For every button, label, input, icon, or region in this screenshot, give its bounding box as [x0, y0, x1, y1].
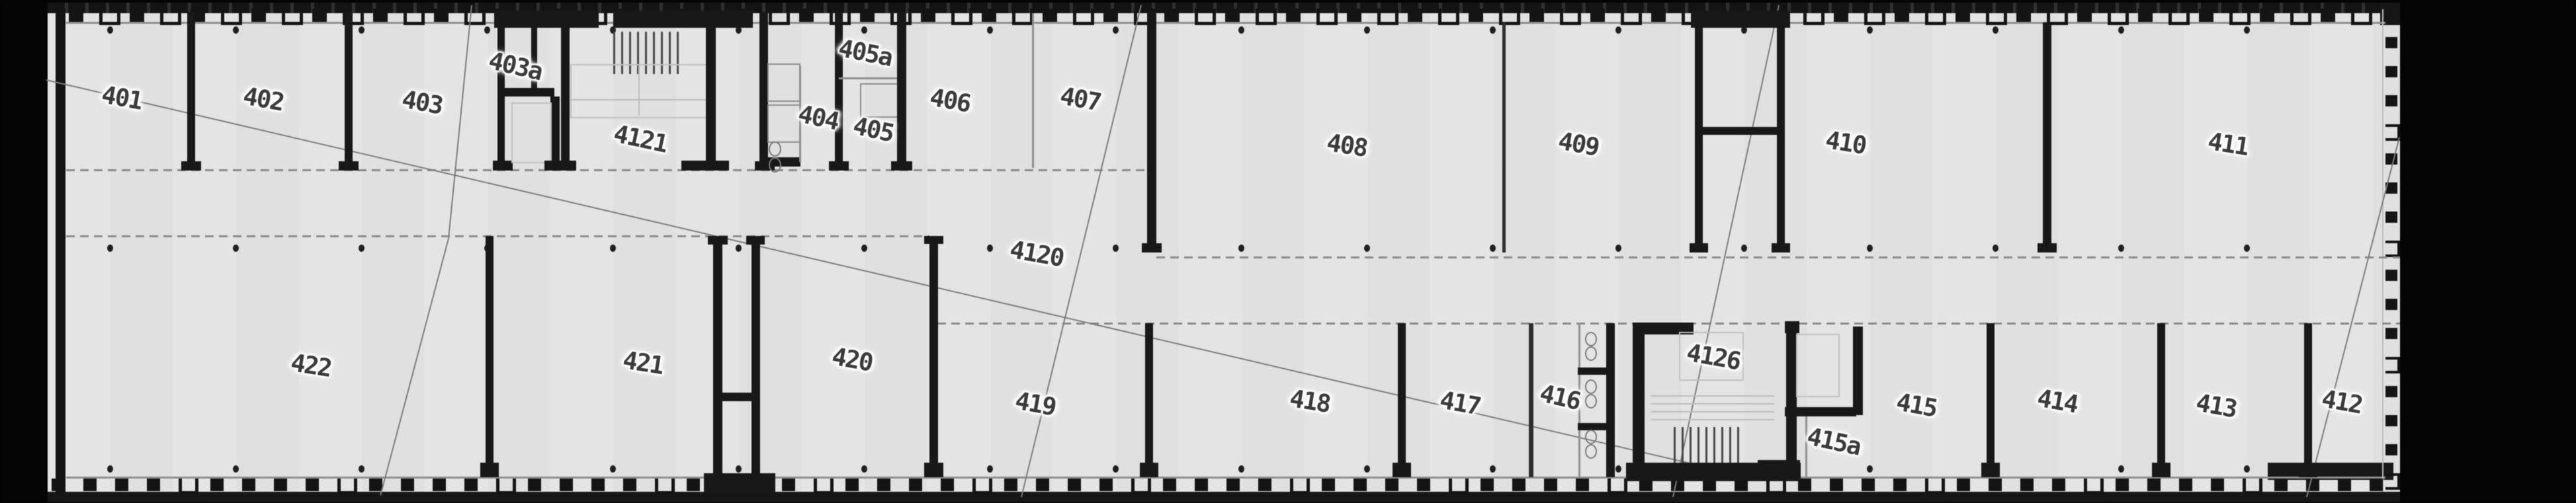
- column-dot: [107, 26, 113, 34]
- window-mullion: [312, 9, 327, 22]
- column-dot: [359, 26, 365, 34]
- window-mullion: [1862, 479, 1875, 491]
- column-dot: [1615, 465, 1621, 473]
- column-dot: [987, 26, 993, 34]
- window-mullion: [1989, 479, 2002, 491]
- wall-foot: [891, 161, 912, 171]
- stair-wall-left: [561, 26, 570, 170]
- elevator-wall-right: [751, 236, 760, 477]
- window-mullion: [1036, 479, 1049, 491]
- window-mullion: [2211, 479, 2224, 491]
- column-dot: [1867, 245, 1873, 252]
- wall-foot: [2152, 463, 2170, 477]
- room-label-408: 408: [1325, 128, 1369, 163]
- window-mullion: [69, 9, 83, 22]
- window-mullion: [2147, 479, 2161, 491]
- window-mullion: [1195, 479, 1208, 491]
- window-mullion: [799, 9, 814, 22]
- window-mullion: [2199, 9, 2213, 22]
- floor-plan-canvas: 401402403403a4121404405405a4064074084094…: [0, 0, 2576, 503]
- facade-dash-right: [2385, 241, 2400, 257]
- window-mullion-open: [1608, 479, 1627, 494]
- column-dot: [1113, 26, 1119, 34]
- stair-tread-4126: [1721, 427, 1723, 467]
- column-dot: [1490, 26, 1496, 34]
- window-mullion: [1955, 9, 1970, 22]
- core-header: [1785, 321, 1799, 333]
- column-dot: [1238, 245, 1244, 252]
- facade-dash-right: [2385, 386, 2397, 397]
- column-dot: [1741, 245, 1747, 252]
- window-mullion: [2116, 479, 2129, 491]
- wc-fixture: [1585, 332, 1597, 346]
- window-mullion: [1068, 479, 1081, 491]
- stair-tread-line: [1651, 419, 1774, 420]
- facade-dash-right: [2385, 444, 2397, 455]
- wall-422-421: [486, 236, 494, 477]
- window-mullion: [1830, 479, 1843, 491]
- column-dot: [987, 245, 993, 252]
- wc-fixture: [769, 141, 781, 157]
- window-mullion: [434, 9, 449, 22]
- window-mullion: [2179, 479, 2192, 491]
- column-dot: [2118, 245, 2124, 252]
- window-mullion: [591, 479, 605, 491]
- window-mullion-open: [2168, 9, 2190, 25]
- window-mullion: [1004, 479, 1017, 491]
- window-mullion: [528, 479, 541, 491]
- closet-outline: [511, 102, 552, 163]
- window-mullion: [1164, 9, 1179, 22]
- window-mullion-open: [769, 9, 790, 25]
- room-label-418: 418: [1288, 384, 1332, 418]
- window-mullion: [251, 9, 266, 22]
- column-dot: [233, 245, 239, 252]
- stair-divider-line: [638, 64, 640, 116]
- column-dot: [987, 465, 993, 473]
- window-mullion: [1258, 479, 1271, 491]
- window-mullion: [2020, 479, 2034, 491]
- stair-tread-4126: [1729, 427, 1731, 467]
- stair-tread-4126: [1737, 427, 1739, 467]
- facade-dash-right: [2385, 299, 2397, 310]
- window-mullion-open: [1449, 479, 1469, 494]
- core-wall-right: [1786, 321, 1797, 472]
- facade-dash-right: [2385, 415, 2397, 426]
- wall-foot: [1772, 243, 1790, 252]
- wc-fixture: [769, 157, 781, 173]
- wc-stall: [767, 63, 800, 102]
- window-mullion: [1322, 479, 1335, 491]
- core-wall-left: [1633, 327, 1645, 475]
- stair-tread-line: [1651, 411, 1774, 412]
- column-dot: [1364, 465, 1370, 473]
- window-mullion: [1385, 479, 1398, 491]
- wall-414-413: [2157, 323, 2165, 477]
- window-mullion: [1481, 479, 1494, 491]
- facade-line-right: [2382, 9, 2383, 492]
- core-base: [1758, 460, 1800, 472]
- elevator-wall-left: [713, 236, 722, 477]
- window-mullion: [464, 479, 478, 491]
- window-mullion: [433, 479, 446, 491]
- window-mullion-open: [1073, 9, 1094, 25]
- column-dot: [861, 245, 867, 252]
- wc-fixture: [1585, 379, 1597, 394]
- wall-413-412: [2304, 323, 2312, 477]
- window-mullion-open: [404, 9, 425, 25]
- window-mullion: [1895, 9, 1909, 22]
- window-mullion-open: [1131, 479, 1151, 494]
- wall-415-414: [1987, 323, 1995, 477]
- wall-foot: [2299, 463, 2317, 477]
- window-mullion-open: [282, 9, 303, 25]
- wall-419-418: [1145, 323, 1153, 477]
- window-mullion: [982, 9, 996, 22]
- column-dot: [1238, 465, 1244, 473]
- stair-tread-4126: [1690, 427, 1692, 467]
- window-mullion: [909, 479, 922, 491]
- column-dot: [2244, 26, 2250, 34]
- window-mullion: [1225, 9, 1240, 22]
- column-dot: [610, 245, 616, 252]
- column-dot: [1490, 245, 1496, 252]
- wc-fixture: [1585, 394, 1597, 408]
- window-mullion: [373, 9, 388, 22]
- column-dot: [233, 465, 239, 473]
- window-mullion-open: [1621, 9, 1642, 25]
- column-dot: [861, 26, 867, 34]
- stair-tread-line: [1651, 395, 1774, 397]
- window-mullion-open: [2290, 9, 2311, 25]
- wall-408-409: [1502, 22, 1506, 252]
- window-mullion-open: [464, 9, 486, 25]
- room-label-422: 422: [289, 348, 333, 383]
- window-mullion: [1576, 479, 1589, 491]
- window-mullion: [1286, 9, 1301, 22]
- wall-foot: [1142, 243, 1162, 252]
- window-mullion: [2260, 9, 2274, 22]
- window-mullion-open: [1195, 9, 1216, 25]
- wall-403a-room: [550, 97, 560, 170]
- window-mullion: [1529, 9, 1544, 22]
- stall-wall: [1578, 423, 1608, 430]
- core-header: [716, 11, 753, 28]
- wall-402-403: [345, 12, 353, 167]
- facade-dash-right: [2385, 66, 2397, 77]
- window-mullion-open: [2351, 9, 2372, 25]
- window-mullion: [941, 479, 954, 491]
- window-mullion: [210, 479, 224, 491]
- wall-nook-right: [1853, 327, 1863, 415]
- wc-stall: [767, 104, 800, 143]
- window-mullion: [1099, 479, 1113, 491]
- window-mullion: [1834, 9, 1848, 22]
- window-mullion-open: [337, 479, 357, 494]
- facade-dash-right: [2385, 270, 2397, 281]
- room-label-411: 411: [2206, 127, 2251, 161]
- shaft-wall-left: [1695, 26, 1703, 251]
- window-mullion-open: [1986, 9, 2007, 25]
- facade-dash-right: [2385, 212, 2397, 223]
- window-mullion: [845, 479, 859, 491]
- wall-foot: [493, 161, 513, 171]
- column-dot: [107, 245, 113, 252]
- stair-landing-outline: [570, 64, 710, 118]
- window-mullion: [687, 479, 700, 491]
- stair-tread-4126: [1674, 427, 1676, 467]
- column-dot: [484, 26, 490, 34]
- column-dot: [1113, 245, 1119, 252]
- column-dot: [359, 245, 365, 252]
- column-dot: [1993, 245, 1998, 252]
- column-dot: [1615, 245, 1621, 252]
- window-mullion-open: [1560, 9, 1581, 25]
- window-mullion: [115, 479, 128, 491]
- window-mullion: [1512, 479, 1525, 491]
- window-mullion: [147, 479, 160, 491]
- wall-401-402: [187, 12, 195, 167]
- window-mullion: [52, 479, 65, 491]
- window-mullion-open: [1290, 479, 1310, 494]
- wall-405-406: [897, 12, 906, 167]
- window-mullion: [921, 9, 935, 22]
- stair-tread-line: [570, 99, 708, 100]
- window-mullion-open: [1256, 9, 1277, 25]
- room-label-421: 421: [621, 346, 665, 380]
- window-mullion-open: [1316, 9, 1338, 25]
- window-mullion: [2274, 479, 2288, 491]
- window-mullion-open: [1864, 9, 1885, 25]
- window-mullion-open: [179, 479, 198, 494]
- wall-foot: [1393, 463, 1411, 477]
- window-mullion: [2052, 479, 2065, 491]
- stair-tread-4126: [1697, 427, 1699, 467]
- window-mullion-open: [2108, 9, 2129, 25]
- window-mullion-open: [2243, 479, 2262, 494]
- column-dot: [2244, 465, 2250, 473]
- window-mullion: [2077, 9, 2092, 22]
- window-mullion: [401, 479, 414, 491]
- column-dot: [736, 245, 742, 252]
- wall-foot: [829, 161, 849, 171]
- window-mullion: [2321, 9, 2335, 22]
- window-mullion: [369, 479, 382, 491]
- wall-foot: [544, 161, 576, 171]
- corridor-line: [1156, 256, 2400, 258]
- window-mullion-open: [1377, 9, 1398, 25]
- window-mullion-open: [221, 9, 242, 25]
- wall-foot: [681, 161, 729, 171]
- shaft-wall-right: [1777, 26, 1785, 251]
- column-dot: [1867, 465, 1873, 473]
- column-dot: [1113, 465, 1119, 473]
- wall-foot: [1690, 243, 1708, 252]
- window-mullion: [860, 9, 875, 22]
- fixture-405: [860, 83, 898, 118]
- wall-foot: [181, 161, 201, 171]
- wall-foot: [1981, 463, 2000, 477]
- window-mullion: [1347, 9, 1361, 22]
- window-mullion-open: [2084, 479, 2104, 494]
- wall-foot: [2038, 243, 2057, 252]
- window-mullion-open: [951, 9, 972, 25]
- column-dot: [233, 26, 239, 34]
- wall-417-416: [1529, 323, 1533, 477]
- wall-405a-bottom-line: [839, 77, 900, 79]
- column-dot: [359, 465, 365, 473]
- window-mullion: [623, 479, 636, 491]
- column-dot: [861, 465, 867, 473]
- column-dot: [1867, 26, 1873, 34]
- window-mullion: [1408, 9, 1422, 22]
- window-mullion-open: [972, 479, 992, 494]
- window-mullion-open: [1925, 9, 1946, 25]
- wall-406-407-line: [1032, 13, 1034, 168]
- column-dot: [610, 465, 616, 473]
- wall-vestibule: [1606, 323, 1615, 477]
- column-dot: [1238, 26, 1244, 34]
- window-mullion: [2138, 9, 2153, 22]
- window-mullion: [130, 9, 144, 22]
- window-mullion: [242, 479, 255, 491]
- window-mullion: [274, 479, 287, 491]
- window-mullion-open: [160, 9, 181, 25]
- stall-wall: [1578, 368, 1608, 375]
- wall-foot: [1140, 463, 1158, 477]
- stair-tread-4126: [1682, 427, 1684, 467]
- window-mullion: [1651, 9, 1666, 22]
- wall-403a-horizontal: [497, 88, 554, 97]
- facade-dash-right: [2385, 37, 2397, 48]
- facade-dash-right: [2385, 473, 2400, 490]
- window-mullion-open: [2229, 9, 2251, 25]
- column-dot: [1615, 26, 1621, 34]
- exterior-wall-bottom: [48, 492, 2400, 502]
- wc-fixture: [1585, 444, 1597, 459]
- stair-tread-4126: [1713, 427, 1715, 467]
- stair-tread-line: [1651, 403, 1774, 405]
- window-mullion: [1957, 479, 1970, 491]
- wall-418-417: [1398, 323, 1406, 477]
- column-dot: [2244, 245, 2250, 252]
- window-mullion-open: [1925, 479, 1945, 494]
- stair-wall-right: [706, 13, 716, 170]
- window-mullion: [1544, 479, 1557, 491]
- column-dot: [1993, 26, 1998, 34]
- window-mullion: [877, 479, 890, 491]
- window-mullion-open: [99, 9, 120, 25]
- window-mullion-open: [814, 479, 834, 494]
- wall-cap: [924, 236, 943, 244]
- corridor-line: [66, 235, 929, 237]
- column-dot: [107, 465, 113, 473]
- wall-cap: [746, 236, 765, 245]
- column-dot: [2118, 26, 2124, 34]
- wall-408-left: [1147, 11, 1156, 251]
- window-mullion: [1893, 479, 1907, 491]
- shaft-divider: [1703, 127, 1777, 135]
- window-mullion: [1103, 9, 1118, 22]
- wall-foot: [924, 463, 943, 477]
- corridor-line: [66, 169, 1156, 171]
- window-mullion-open: [496, 479, 516, 494]
- facade-dash-right: [2385, 328, 2397, 339]
- core-header: [494, 11, 599, 28]
- column-dot: [1490, 465, 1496, 473]
- window-mullion-open: [1803, 9, 1825, 25]
- wall-420-419: [929, 236, 938, 477]
- elevator-divider: [722, 393, 751, 401]
- column-dot: [1364, 26, 1370, 34]
- stair-tread-4126: [1705, 427, 1707, 467]
- window-mullion: [2370, 479, 2383, 491]
- window-mullion: [1417, 479, 1430, 491]
- window-mullion: [1163, 479, 1176, 491]
- facade-dash-right: [2385, 95, 2397, 106]
- window-mullion-open: [1012, 9, 1033, 25]
- wall-foot: [480, 463, 499, 477]
- column-dot: [736, 465, 742, 473]
- wall-415a-top: [1785, 407, 1856, 416]
- window-mullion-open: [655, 479, 675, 494]
- wc-fixture: [1585, 430, 1597, 444]
- shaft-header: [1691, 11, 1790, 28]
- facade-dash-right: [2385, 357, 2400, 373]
- window-mullion: [1226, 479, 1240, 491]
- room-label-410: 410: [1824, 126, 1868, 160]
- window-mullion: [2016, 9, 2031, 22]
- window-mullion: [1043, 9, 1057, 22]
- window-mullion: [1590, 9, 1605, 22]
- wall-410-411: [2043, 22, 2051, 251]
- window-mullion: [782, 479, 795, 491]
- window-mullion-open: [1438, 9, 1459, 25]
- window-mullion: [2338, 479, 2351, 491]
- landing-ghost: [1796, 334, 1840, 397]
- window-mullion: [306, 479, 319, 491]
- wc-fixture: [1585, 346, 1597, 361]
- wall-foot: [339, 161, 359, 171]
- window-mullion: [83, 479, 97, 491]
- column-dot: [1364, 245, 1370, 252]
- elevator-base: [704, 473, 775, 493]
- wall-cap: [708, 236, 728, 245]
- window-mullion: [560, 479, 573, 491]
- column-dot: [2118, 465, 2124, 473]
- window-mullion: [1353, 479, 1367, 491]
- window-mullion: [1469, 9, 1483, 22]
